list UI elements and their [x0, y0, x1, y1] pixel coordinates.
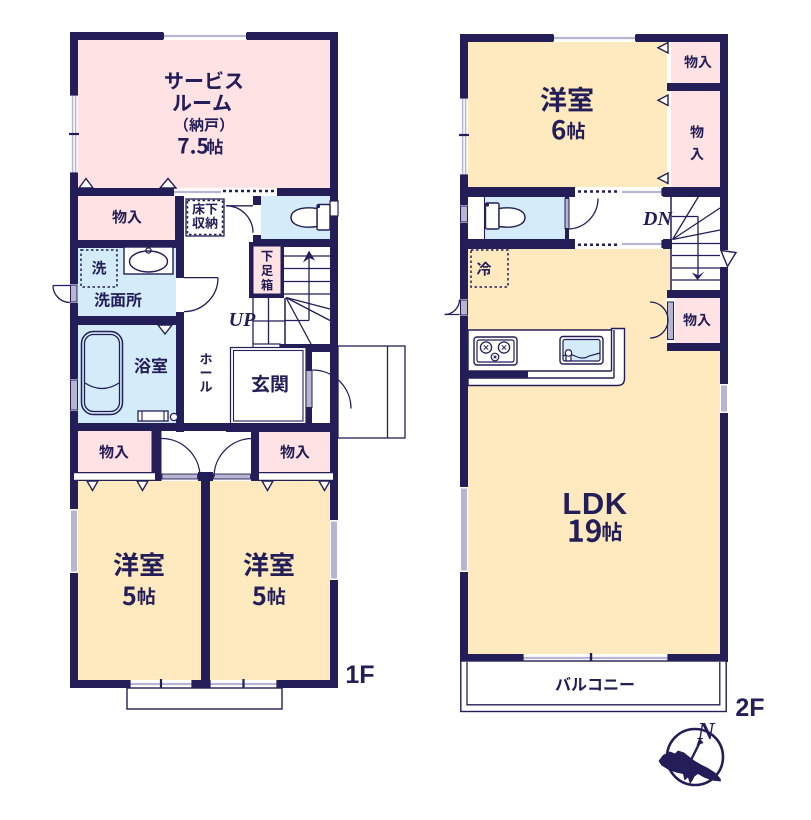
svg-text:LDK: LDK	[562, 486, 627, 521]
svg-text:N: N	[696, 719, 716, 745]
svg-text:2F: 2F	[735, 694, 764, 722]
svg-text:UP: UP	[229, 309, 256, 331]
svg-text:1F: 1F	[345, 661, 374, 689]
svg-text:DN: DN	[642, 208, 673, 230]
